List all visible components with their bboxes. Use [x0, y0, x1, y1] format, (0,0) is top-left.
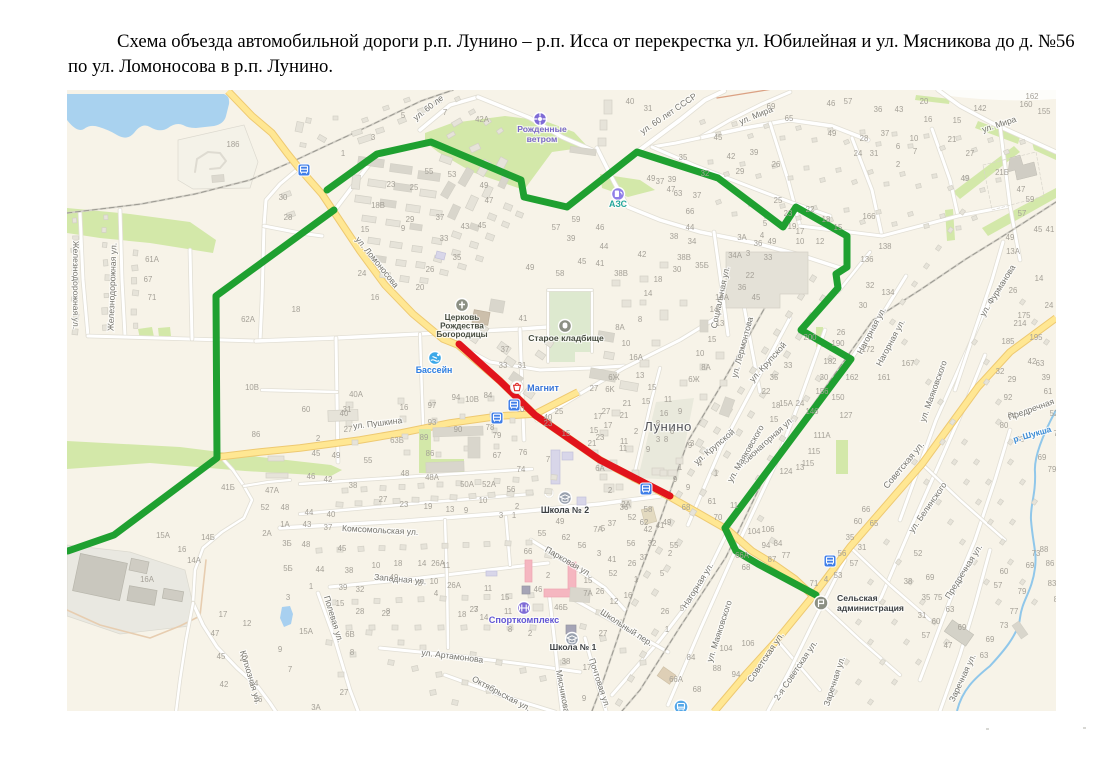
svg-text:26: 26 — [426, 265, 435, 274]
svg-text:21: 21 — [623, 399, 632, 408]
svg-text:16: 16 — [924, 115, 933, 124]
svg-text:35: 35 — [679, 153, 688, 162]
svg-text:40: 40 — [327, 510, 336, 519]
svg-text:10: 10 — [479, 496, 488, 505]
svg-text:35Б: 35Б — [695, 261, 709, 270]
svg-text:58: 58 — [556, 269, 565, 278]
svg-text:62: 62 — [640, 518, 649, 527]
svg-text:71: 71 — [810, 579, 819, 588]
svg-text:38: 38 — [904, 577, 913, 586]
svg-text:53: 53 — [448, 170, 457, 179]
svg-text:84: 84 — [774, 539, 783, 548]
svg-text:1: 1 — [665, 625, 669, 634]
svg-text:4: 4 — [434, 589, 439, 598]
svg-text:13: 13 — [636, 371, 645, 380]
svg-text:15: 15 — [770, 415, 779, 424]
svg-text:155: 155 — [1037, 107, 1051, 116]
svg-text:13: 13 — [716, 319, 725, 328]
svg-text:106: 106 — [761, 525, 774, 534]
svg-text:46: 46 — [827, 99, 836, 108]
svg-text:79: 79 — [1018, 587, 1027, 596]
svg-text:7: 7 — [913, 147, 917, 156]
svg-text:37: 37 — [693, 191, 702, 200]
svg-text:1: 1 — [634, 575, 638, 584]
svg-text:8: 8 — [638, 315, 642, 324]
svg-text:9: 9 — [464, 506, 468, 515]
svg-text:75: 75 — [934, 593, 943, 602]
svg-text:57: 57 — [844, 97, 853, 106]
svg-text:48: 48 — [302, 540, 311, 549]
svg-text:45: 45 — [338, 544, 347, 553]
svg-text:56: 56 — [578, 541, 587, 550]
svg-text:Лунино: Лунино — [644, 419, 692, 434]
svg-text:3: 3 — [371, 133, 375, 142]
svg-text:15: 15 — [336, 599, 345, 608]
svg-text:26: 26 — [661, 607, 670, 616]
svg-text:Школа № 2: Школа № 2 — [541, 505, 589, 515]
svg-text:13: 13 — [446, 505, 455, 514]
svg-text:69: 69 — [1038, 453, 1047, 462]
svg-text:29: 29 — [736, 167, 745, 176]
svg-text:94: 94 — [452, 393, 461, 402]
svg-text:63: 63 — [946, 605, 955, 614]
svg-text:15: 15 — [834, 223, 843, 232]
svg-text:37: 37 — [640, 553, 649, 562]
svg-text:10В: 10В — [245, 383, 259, 392]
svg-text:57: 57 — [1018, 209, 1027, 218]
svg-text:76: 76 — [519, 448, 528, 457]
svg-text:42: 42 — [638, 250, 647, 259]
svg-text:71: 71 — [148, 293, 157, 302]
svg-text:1: 1 — [678, 463, 682, 472]
svg-text:39: 39 — [339, 583, 348, 592]
svg-text:161: 161 — [877, 373, 890, 382]
svg-text:9: 9 — [401, 224, 405, 233]
svg-text:17: 17 — [219, 610, 228, 619]
svg-text:104: 104 — [747, 527, 761, 536]
svg-text:48: 48 — [281, 503, 290, 512]
svg-text:49: 49 — [332, 451, 341, 460]
svg-text:44: 44 — [686, 223, 695, 232]
svg-text:18: 18 — [292, 305, 301, 314]
svg-text:18: 18 — [458, 610, 467, 619]
svg-text:15A: 15A — [779, 399, 794, 408]
svg-text:35: 35 — [846, 533, 855, 542]
svg-text:5Б: 5Б — [283, 564, 292, 573]
svg-text:Спорткомплекс: Спорткомплекс — [489, 615, 560, 625]
svg-text:7: 7 — [546, 455, 550, 464]
svg-text:37: 37 — [881, 129, 890, 138]
svg-text:1А: 1А — [280, 520, 290, 529]
svg-text:31: 31 — [858, 543, 867, 552]
svg-text:28: 28 — [284, 213, 293, 222]
svg-text:21Б: 21Б — [995, 168, 1009, 177]
svg-text:Рожденные: Рожденные — [517, 124, 567, 134]
svg-text:55: 55 — [670, 541, 679, 550]
svg-text:92: 92 — [1004, 393, 1013, 402]
svg-text:6Ж: 6Ж — [608, 373, 620, 382]
svg-text:43: 43 — [303, 520, 312, 529]
svg-text:45: 45 — [714, 133, 723, 142]
svg-text:24: 24 — [1045, 301, 1054, 310]
svg-text:88: 88 — [1040, 545, 1049, 554]
svg-text:55: 55 — [425, 167, 434, 176]
svg-text:49: 49 — [390, 573, 399, 582]
svg-text:32: 32 — [866, 281, 875, 290]
svg-text:15: 15 — [501, 593, 510, 602]
svg-text:8: 8 — [508, 625, 512, 634]
svg-text:27: 27 — [340, 688, 349, 697]
svg-text:9: 9 — [646, 445, 650, 454]
svg-text:27: 27 — [470, 605, 479, 614]
svg-text:55: 55 — [538, 529, 547, 538]
svg-text:88: 88 — [713, 664, 722, 673]
svg-text:18В: 18В — [371, 201, 385, 210]
svg-text:9: 9 — [673, 475, 677, 484]
svg-text:10В: 10В — [465, 395, 479, 404]
svg-text:6: 6 — [896, 142, 900, 151]
svg-text:186: 186 — [226, 140, 239, 149]
svg-text:38В: 38В — [677, 253, 691, 262]
svg-text:38: 38 — [670, 232, 679, 241]
svg-text:7: 7 — [288, 665, 292, 674]
svg-text:16A: 16A — [715, 293, 730, 302]
svg-text:49: 49 — [526, 263, 535, 272]
svg-text:49: 49 — [1006, 233, 1015, 242]
svg-text:146: 146 — [805, 407, 818, 416]
svg-text:97: 97 — [428, 401, 437, 410]
svg-text:7A: 7A — [593, 525, 603, 534]
svg-text:36: 36 — [754, 239, 763, 248]
svg-text:70: 70 — [714, 513, 723, 522]
svg-text:28: 28 — [860, 134, 869, 143]
svg-text:60: 60 — [302, 405, 311, 414]
svg-text:25: 25 — [555, 407, 564, 416]
svg-text:32: 32 — [996, 367, 1005, 376]
svg-text:3: 3 — [656, 435, 660, 444]
svg-text:134: 134 — [881, 288, 895, 297]
svg-text:4: 4 — [698, 459, 703, 468]
svg-text:11: 11 — [664, 395, 672, 404]
svg-text:37: 37 — [324, 523, 333, 532]
svg-text:56: 56 — [507, 485, 516, 494]
svg-text:60: 60 — [1000, 567, 1009, 576]
svg-text:66: 66 — [524, 547, 533, 556]
svg-text:46: 46 — [534, 585, 543, 594]
svg-text:14: 14 — [644, 289, 653, 298]
svg-text:10: 10 — [622, 339, 631, 348]
svg-text:21: 21 — [588, 439, 597, 448]
svg-text:13A: 13A — [1006, 247, 1021, 256]
svg-text:93: 93 — [428, 418, 437, 427]
svg-text:167: 167 — [901, 359, 914, 368]
svg-text:175: 175 — [1017, 311, 1031, 320]
svg-text:26: 26 — [596, 587, 605, 596]
svg-text:79: 79 — [493, 431, 502, 440]
svg-text:59: 59 — [1026, 195, 1035, 204]
svg-text:68: 68 — [682, 503, 691, 512]
svg-text:12: 12 — [610, 597, 619, 606]
svg-text:16А: 16А — [140, 575, 155, 584]
svg-text:77: 77 — [1010, 607, 1019, 616]
svg-text:162: 162 — [845, 373, 858, 382]
svg-text:66А: 66А — [735, 551, 750, 560]
svg-text:52: 52 — [914, 549, 923, 558]
svg-text:94: 94 — [762, 541, 771, 550]
svg-text:4: 4 — [824, 575, 829, 584]
svg-text:84: 84 — [1008, 411, 1017, 420]
svg-text:48: 48 — [401, 469, 410, 478]
svg-text:41: 41 — [1046, 225, 1055, 234]
svg-text:45: 45 — [1034, 225, 1043, 234]
svg-text:Богородицы: Богородицы — [436, 330, 487, 339]
svg-text:38: 38 — [562, 657, 571, 666]
svg-text:9: 9 — [686, 483, 690, 492]
svg-text:185: 185 — [1001, 337, 1015, 346]
svg-text:11: 11 — [484, 584, 492, 593]
svg-text:6А: 6А — [595, 464, 605, 473]
svg-text:3: 3 — [286, 593, 290, 602]
svg-text:68: 68 — [693, 685, 702, 694]
svg-text:33: 33 — [764, 253, 773, 262]
svg-text:8: 8 — [656, 419, 660, 428]
svg-text:15: 15 — [361, 225, 370, 234]
svg-text:22: 22 — [762, 387, 771, 396]
svg-text:45: 45 — [578, 257, 587, 266]
svg-text:68: 68 — [742, 563, 751, 572]
svg-text:49: 49 — [647, 174, 656, 183]
svg-text:44: 44 — [305, 508, 314, 517]
svg-text:27: 27 — [602, 407, 611, 416]
svg-text:27: 27 — [379, 495, 388, 504]
svg-text:46Б: 46Б — [554, 603, 568, 612]
svg-text:69: 69 — [958, 623, 967, 632]
svg-text:46: 46 — [307, 472, 316, 481]
svg-text:1: 1 — [714, 469, 718, 478]
svg-text:29: 29 — [1008, 375, 1017, 384]
svg-text:30: 30 — [859, 301, 868, 310]
svg-text:37: 37 — [501, 345, 510, 354]
svg-text:81: 81 — [1054, 595, 1056, 604]
svg-text:47: 47 — [211, 629, 220, 638]
svg-text:124: 124 — [779, 467, 793, 476]
svg-text:43: 43 — [895, 105, 904, 114]
svg-text:52: 52 — [628, 513, 637, 522]
svg-text:23: 23 — [784, 209, 793, 218]
svg-text:28: 28 — [356, 607, 365, 616]
svg-text:9: 9 — [678, 407, 682, 416]
svg-text:8A: 8A — [701, 363, 711, 372]
svg-text:136: 136 — [860, 255, 873, 264]
svg-text:24: 24 — [250, 679, 259, 688]
svg-text:39: 39 — [1042, 373, 1051, 382]
svg-text:79: 79 — [1048, 465, 1056, 474]
svg-text:3A: 3A — [737, 233, 747, 242]
svg-text:44: 44 — [600, 242, 609, 251]
svg-text:45: 45 — [312, 449, 321, 458]
svg-text:33: 33 — [784, 361, 793, 370]
svg-text:Бассейн: Бассейн — [416, 365, 453, 375]
svg-text:40А: 40А — [349, 390, 364, 399]
svg-text:66: 66 — [686, 207, 695, 216]
svg-text:15А: 15А — [156, 531, 171, 540]
svg-text:22: 22 — [806, 205, 815, 214]
svg-text:5: 5 — [763, 219, 768, 228]
svg-text:57: 57 — [994, 581, 1003, 590]
svg-text:29: 29 — [406, 215, 415, 224]
svg-text:2: 2 — [668, 549, 672, 558]
svg-text:57: 57 — [922, 631, 931, 640]
svg-text:АЗС: АЗС — [609, 199, 628, 209]
svg-text:42: 42 — [324, 475, 333, 484]
svg-text:61A: 61A — [145, 255, 160, 264]
svg-text:14: 14 — [710, 305, 719, 314]
svg-text:67: 67 — [144, 275, 153, 284]
svg-text:10: 10 — [796, 237, 805, 246]
svg-text:3А: 3А — [311, 703, 321, 711]
svg-text:73: 73 — [1054, 429, 1056, 438]
svg-text:195: 195 — [1029, 333, 1043, 342]
svg-text:5: 5 — [660, 569, 665, 578]
svg-text:60: 60 — [932, 617, 941, 626]
svg-text:Сельская: Сельская — [837, 593, 878, 603]
svg-text:32: 32 — [648, 539, 657, 548]
svg-text:ветром: ветром — [527, 134, 558, 144]
svg-text:44: 44 — [316, 565, 325, 574]
svg-text:39: 39 — [750, 148, 759, 157]
svg-text:1: 1 — [309, 582, 313, 591]
svg-text:26: 26 — [837, 328, 846, 337]
svg-text:37: 37 — [656, 177, 665, 186]
svg-text:19: 19 — [424, 502, 433, 511]
svg-text:21: 21 — [620, 411, 629, 420]
svg-text:190: 190 — [831, 339, 845, 348]
svg-text:15: 15 — [642, 397, 651, 406]
svg-text:3: 3 — [499, 511, 503, 520]
svg-text:58: 58 — [644, 505, 653, 514]
svg-text:6Ж: 6Ж — [688, 375, 700, 384]
svg-text:115: 115 — [808, 447, 821, 456]
svg-text:47: 47 — [944, 641, 953, 650]
svg-text:2: 2 — [528, 629, 532, 638]
svg-text:87: 87 — [768, 555, 777, 564]
svg-text:63Б: 63Б — [390, 436, 404, 445]
svg-text:12: 12 — [816, 237, 825, 246]
svg-text:52: 52 — [1050, 409, 1056, 418]
svg-text:20: 20 — [416, 283, 425, 292]
svg-text:104: 104 — [719, 644, 733, 653]
svg-text:38: 38 — [345, 566, 354, 575]
svg-text:63: 63 — [1036, 359, 1045, 368]
svg-text:22: 22 — [382, 609, 391, 618]
svg-text:Старое кладбище: Старое кладбище — [528, 333, 604, 343]
svg-text:34: 34 — [688, 237, 697, 246]
svg-text:15А: 15А — [299, 627, 314, 636]
svg-text:49: 49 — [556, 517, 565, 526]
svg-text:5: 5 — [401, 111, 406, 120]
svg-text:18: 18 — [394, 559, 403, 568]
svg-text:57: 57 — [850, 559, 859, 568]
svg-text:16: 16 — [178, 545, 187, 554]
svg-text:1: 1 — [512, 511, 516, 520]
svg-text:39: 39 — [668, 175, 677, 184]
svg-text:30: 30 — [673, 265, 682, 274]
svg-text:11: 11 — [730, 501, 738, 510]
svg-text:32: 32 — [356, 585, 365, 594]
svg-text:49: 49 — [663, 518, 672, 527]
svg-text:42: 42 — [727, 152, 736, 161]
svg-text:27: 27 — [966, 149, 975, 158]
svg-text:11: 11 — [442, 561, 450, 570]
svg-text:11: 11 — [619, 444, 627, 453]
svg-text:14А: 14А — [187, 556, 202, 565]
svg-text:160: 160 — [1019, 100, 1033, 109]
svg-text:24: 24 — [358, 269, 367, 278]
svg-text:24: 24 — [854, 149, 863, 158]
svg-text:24: 24 — [796, 399, 805, 408]
svg-text:15: 15 — [584, 576, 593, 585]
svg-text:66: 66 — [862, 505, 871, 514]
svg-text:16: 16 — [400, 403, 409, 412]
svg-text:9: 9 — [278, 645, 282, 654]
svg-text:27: 27 — [590, 384, 599, 393]
svg-text:37: 37 — [436, 213, 445, 222]
svg-text:15: 15 — [708, 335, 717, 344]
svg-text:48А: 48А — [425, 473, 440, 482]
svg-text:7A: 7A — [583, 589, 593, 598]
svg-text:67: 67 — [493, 451, 502, 460]
svg-text:200: 200 — [803, 333, 817, 342]
svg-text:39: 39 — [567, 234, 576, 243]
svg-text:6: 6 — [670, 427, 674, 436]
svg-text:20: 20 — [920, 97, 929, 106]
svg-text:45: 45 — [478, 221, 487, 230]
svg-text:84: 84 — [484, 391, 493, 400]
svg-text:16: 16 — [371, 293, 380, 302]
svg-text:45: 45 — [752, 293, 761, 302]
svg-text:47: 47 — [485, 196, 494, 205]
svg-text:2А: 2А — [262, 529, 272, 538]
svg-text:86: 86 — [426, 449, 435, 458]
svg-text:115: 115 — [802, 459, 815, 468]
svg-text:15: 15 — [648, 383, 657, 392]
svg-text:2: 2 — [546, 571, 550, 580]
svg-text:55: 55 — [364, 456, 373, 465]
svg-text:15: 15 — [590, 426, 599, 435]
svg-text:26: 26 — [772, 160, 781, 169]
svg-text:89: 89 — [420, 433, 429, 442]
svg-text:56: 56 — [838, 549, 847, 558]
svg-text:73: 73 — [1000, 621, 1009, 630]
svg-text:23: 23 — [400, 500, 409, 509]
svg-text:33: 33 — [499, 361, 508, 370]
svg-text:18: 18 — [654, 275, 663, 284]
svg-text:2: 2 — [608, 486, 612, 495]
svg-text:8: 8 — [418, 579, 422, 588]
svg-text:52А: 52А — [482, 480, 497, 489]
svg-text:52: 52 — [609, 569, 618, 578]
svg-text:35: 35 — [453, 253, 462, 262]
svg-text:36: 36 — [874, 105, 883, 114]
svg-text:49: 49 — [961, 174, 970, 183]
svg-text:49: 49 — [480, 181, 489, 190]
svg-text:14: 14 — [418, 559, 427, 568]
svg-text:администрация: администрация — [837, 603, 904, 613]
svg-text:111A: 111A — [813, 431, 831, 440]
svg-text:69: 69 — [1026, 561, 1035, 570]
svg-text:138: 138 — [878, 242, 891, 251]
svg-text:14: 14 — [1035, 274, 1044, 283]
